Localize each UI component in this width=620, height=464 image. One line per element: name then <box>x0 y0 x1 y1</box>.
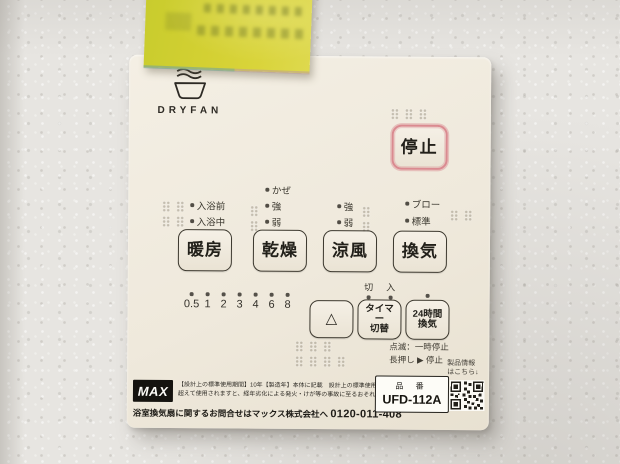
bullet-dot <box>405 219 409 223</box>
indicator-dot <box>238 293 242 297</box>
product-info-label: 製品情報 はこちら↓ <box>447 360 479 377</box>
switch-state-labels: 切 入 <box>358 280 402 299</box>
braille-drying <box>250 206 258 232</box>
mode-button-ventilation[interactable]: 換気 <box>393 231 447 273</box>
bullet-dot <box>190 219 194 223</box>
vent-24h-button[interactable]: 24時間 換気 <box>405 300 449 340</box>
mode-button-drying[interactable]: 乾燥 <box>253 230 307 272</box>
option-before-bath: 入浴前 <box>190 198 225 212</box>
hint-long-press: 長押し ▶ 停止 <box>389 354 443 366</box>
bullet-dot <box>337 220 341 224</box>
max-logo: MAX <box>133 380 173 402</box>
option-drying-weak: 弱 <box>265 215 281 229</box>
option-kaze: かぜ <box>265 183 291 197</box>
mode-button-heating[interactable]: 暖房 <box>178 229 232 271</box>
switch-off-label: 切 <box>364 280 373 299</box>
ghost-text-line <box>197 25 309 39</box>
braille-stop <box>391 109 427 120</box>
contact-line: 浴室換気扇に関するお問合せはマックス株式会社へ 0120-011-408 <box>133 403 402 423</box>
indicator-dot <box>426 294 430 298</box>
braille-cool-breeze <box>362 206 370 232</box>
sticky-note <box>144 0 313 74</box>
indicator-dot <box>286 293 290 297</box>
part-number-value: UFD-112A <box>376 392 448 407</box>
indicator-dot <box>206 292 210 296</box>
part-number-label: 品 番 <box>376 380 448 392</box>
bath-fan-control-panel: DRYFAN 停止 入浴前 入浴中 かぜ 強 弱 強 弱 <box>127 55 492 431</box>
option-standard: 標準 <box>405 214 431 228</box>
bullet-dot <box>190 203 194 207</box>
stop-button[interactable]: 停止 <box>392 125 448 170</box>
indicator-dot <box>367 295 371 299</box>
option-cool-weak: 弱 <box>337 215 353 229</box>
dryfan-logo: DRYFAN <box>155 67 225 116</box>
timer-scale-8: 8 <box>277 293 299 311</box>
qr-code <box>449 380 485 411</box>
indicator-dot <box>389 296 393 300</box>
ghost-mark <box>165 12 192 31</box>
option-cool-strong: 強 <box>337 199 353 213</box>
part-number-box: 品 番 UFD-112A <box>375 375 449 413</box>
bullet-dot <box>337 204 341 208</box>
vent24-indicator <box>406 292 450 298</box>
timer-switch-button[interactable]: タイマー 切替 <box>357 299 401 339</box>
switch-on-label: 入 <box>386 281 395 300</box>
indicator-dot <box>270 293 274 297</box>
option-blow: ブロー <box>405 197 440 211</box>
bullet-dot <box>265 188 269 192</box>
usage-notice: 【設計上の標準使用期間】10年【製造年】本体に記載 設計上の標準使用期間を 超え… <box>178 381 378 400</box>
indicator-dot <box>190 292 194 296</box>
brand-name: DRYFAN <box>155 105 225 116</box>
bathtub-steam-icon <box>167 67 213 101</box>
option-during-bath: 入浴中 <box>190 214 225 228</box>
hint-blink: 点滅：一時停止 <box>389 341 449 353</box>
up-arrow-button[interactable]: △ <box>309 300 353 338</box>
mode-button-cool-breeze[interactable]: 涼風 <box>323 230 377 272</box>
indicator-dot <box>222 292 226 296</box>
indicator-dot <box>254 293 258 297</box>
bullet-dot <box>405 202 409 206</box>
braille-heating <box>162 201 184 227</box>
bullet-dot <box>265 204 269 208</box>
option-drying-strong: 強 <box>265 199 281 213</box>
braille-ventilation <box>450 210 472 221</box>
braille-timer <box>295 341 345 367</box>
bullet-dot <box>265 220 269 224</box>
ghost-text-line <box>204 3 304 16</box>
